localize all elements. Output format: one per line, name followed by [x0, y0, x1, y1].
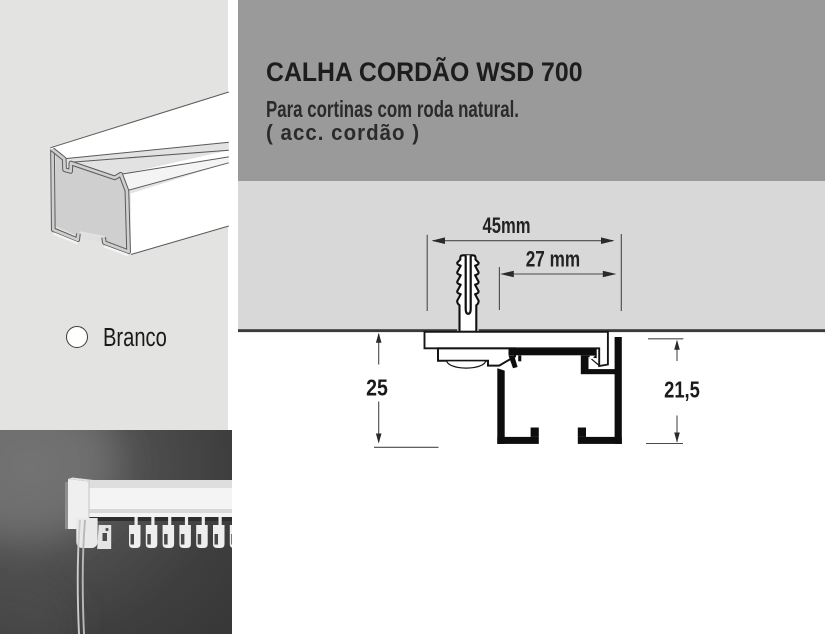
svg-text:25: 25 — [366, 375, 388, 401]
svg-text:27 mm: 27 mm — [526, 247, 580, 272]
svg-text:21,5: 21,5 — [664, 378, 700, 403]
svg-text:45mm: 45mm — [483, 214, 531, 239]
